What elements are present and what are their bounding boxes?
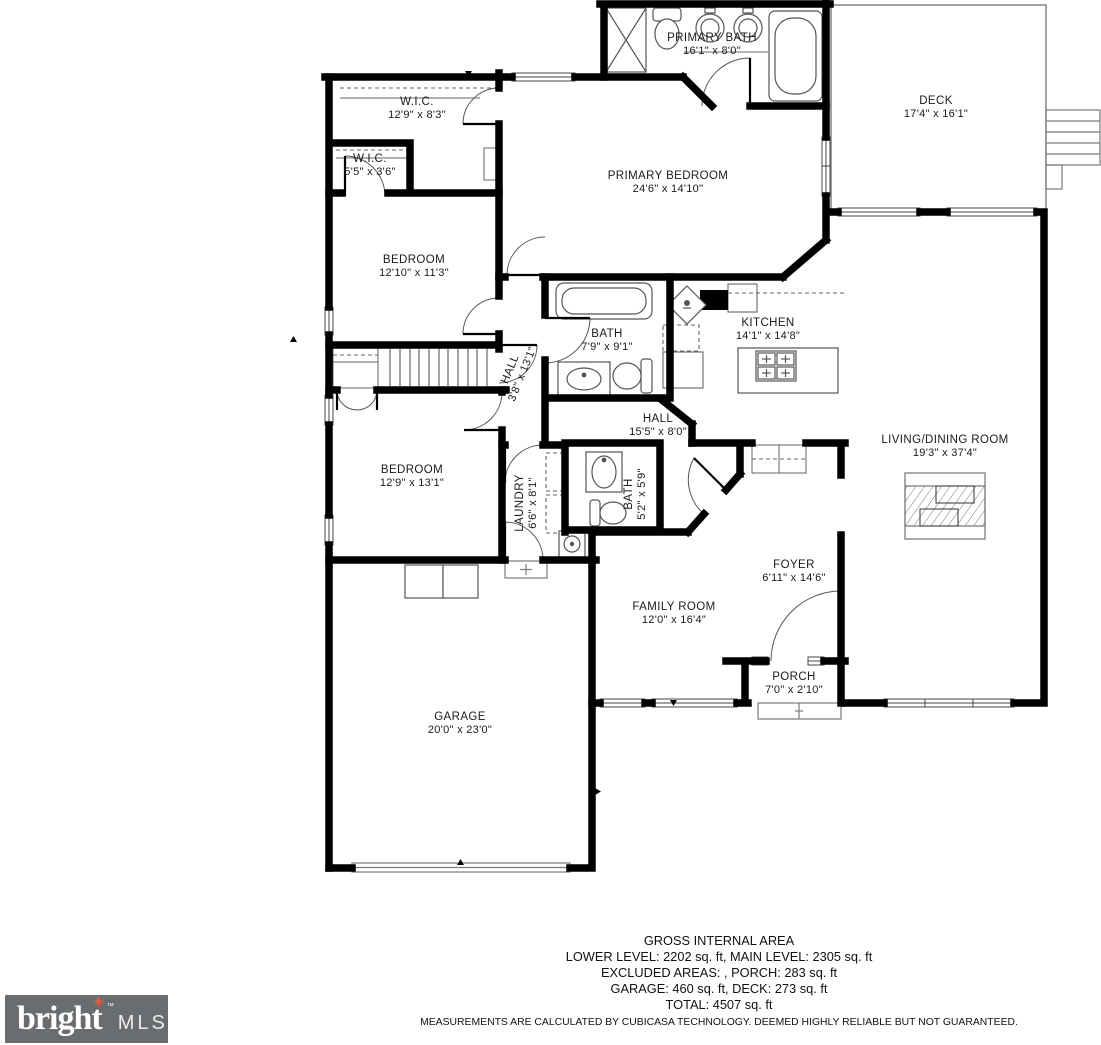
room-label-bedroom-lower: BEDROOM 12'9" x 13'1" — [380, 463, 444, 491]
bright-mls-logo: bright ✦ ™ MLS — [5, 995, 168, 1043]
staircase-main — [390, 349, 487, 386]
room-label-primary-bath: PRIMARY BATH 16'1" x 8'0" — [667, 31, 757, 59]
room-label-family-room: FAMILY ROOM 12'0" x 16'4" — [632, 600, 715, 628]
room-label-living-dining: LIVING/DINING ROOM 19'3" x 37'4" — [881, 433, 1008, 461]
summary-title: GROSS INTERNAL AREA — [338, 933, 1100, 949]
kitchen-island — [738, 348, 838, 393]
summary-excluded: EXCLUDED AREAS: , PORCH: 283 sq. ft — [338, 965, 1100, 981]
room-label-kitchen: KITCHEN 14'1" x 14'8" — [736, 316, 800, 344]
sink-icon-small-bath — [586, 452, 622, 492]
logo-trademark: ™ — [107, 1003, 114, 1010]
room-label-primary-bedroom: PRIMARY BEDROOM 24'6" x 14'10" — [608, 169, 729, 197]
bathtub-icon-primary — [769, 11, 822, 101]
porch-steps — [758, 703, 841, 719]
room-label-bath-main: BATH 7'9" x 9'1" — [581, 327, 632, 355]
shower-icon — [606, 8, 646, 72]
room-label-laundry: LAUNDRY 6'6" x 8'1" — [513, 474, 541, 532]
room-label-wic-small: W.I.C. 5'5" x 3'6" — [344, 152, 395, 180]
floor-plan-page: PRIMARY BATH 16'1" x 8'0" DECK 17'4" x 1… — [0, 0, 1101, 1045]
area-summary: GROSS INTERNAL AREA LOWER LEVEL: 2202 sq… — [338, 933, 1100, 1030]
logo-brand-text: bright — [17, 1000, 102, 1037]
garage-cabinets — [405, 565, 478, 598]
star-icon: ✦ — [92, 995, 104, 1010]
room-label-garage: GARAGE 20'0" x 23'0" — [428, 710, 492, 738]
deck-stairs — [1046, 110, 1100, 189]
summary-levels: LOWER LEVEL: 2202 sq. ft, MAIN LEVEL: 23… — [338, 949, 1100, 965]
room-label-porch: PORCH 7'0" x 2'10" — [765, 670, 823, 698]
fireplace-icon — [905, 473, 985, 539]
room-label-wic-large: W.I.C. 12'9" x 8'3" — [388, 95, 446, 123]
summary-disclaimer: MEASUREMENTS ARE CALCULATED BY CUBICASA … — [338, 1016, 1100, 1030]
bathtub-icon-main — [556, 283, 652, 319]
summary-garage-deck: GARAGE: 460 sq. ft, DECK: 273 sq. ft — [338, 981, 1100, 997]
summary-total: TOTAL: 4507 sq. ft — [338, 997, 1100, 1013]
logo-suffix-text: MLS — [118, 1012, 168, 1035]
room-label-bath-small: BATH 5'2" x 5'9" — [622, 468, 650, 519]
room-label-bedroom-upper: BEDROOM 12'10" x 11'3" — [379, 253, 449, 281]
room-label-foyer: FOYER 6'11" x 14'6" — [762, 558, 825, 586]
room-label-deck: DECK 17'4" x 16'1" — [904, 94, 968, 122]
toilet-icon-main-bath — [613, 359, 652, 393]
floor-plan-drawing — [0, 0, 1101, 1045]
room-label-hall-main: HALL 15'5" x 8'0" — [629, 412, 687, 440]
sink-icon-main-bath — [558, 362, 610, 397]
toilet-icon-small-bath — [590, 500, 626, 526]
